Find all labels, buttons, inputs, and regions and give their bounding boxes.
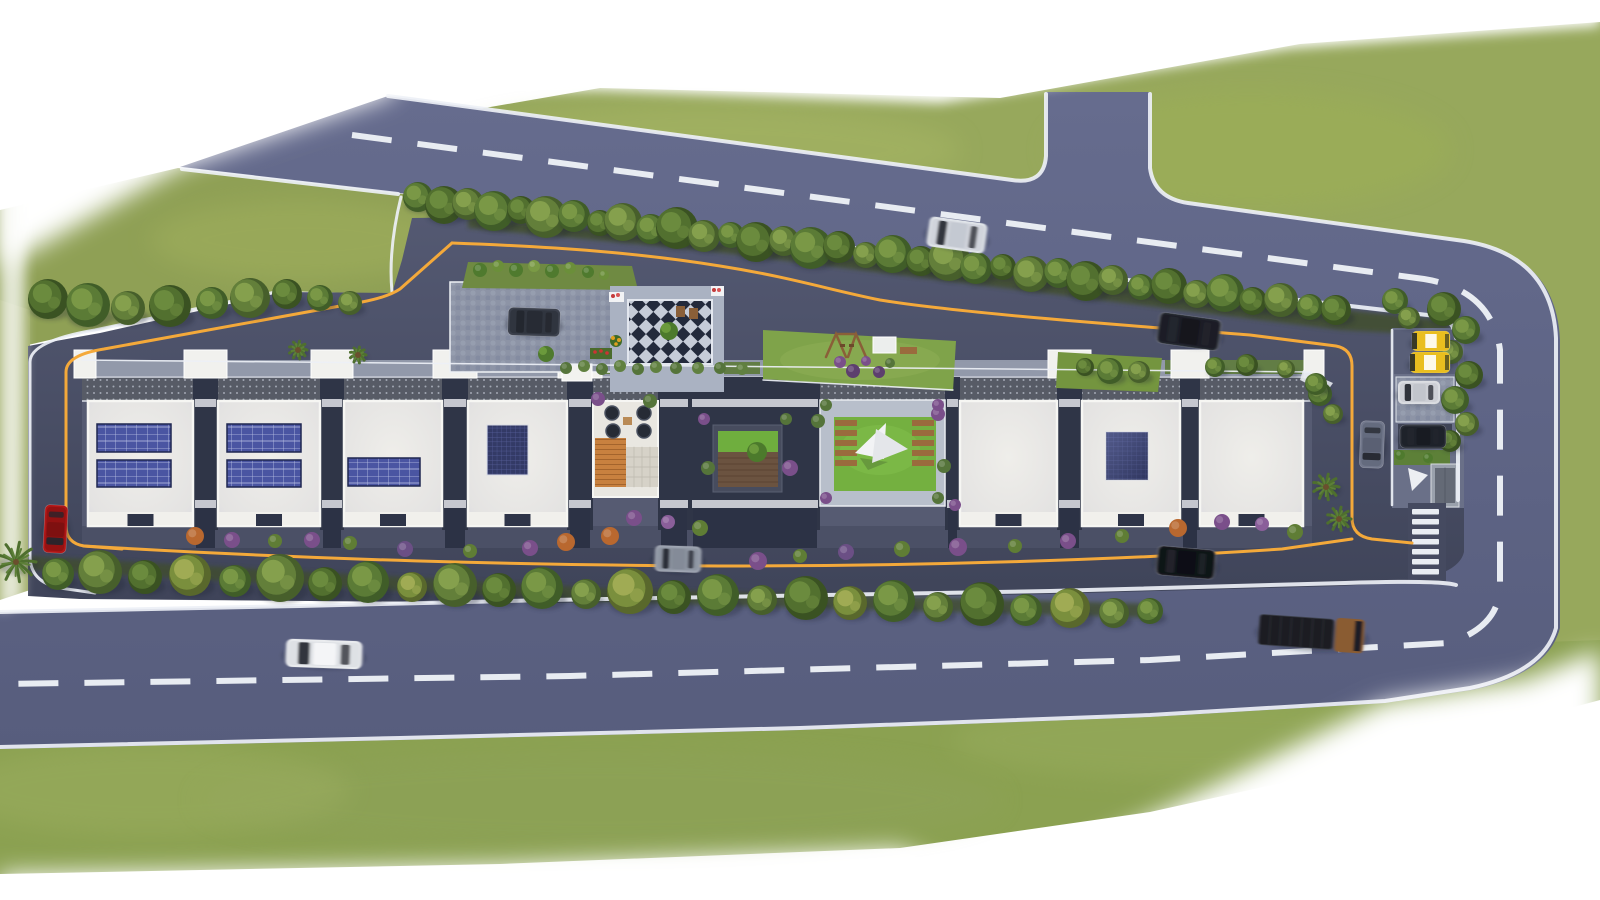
bush bbox=[304, 532, 320, 548]
bush bbox=[873, 366, 885, 378]
bush bbox=[343, 536, 357, 550]
bush bbox=[650, 361, 662, 373]
bush bbox=[692, 520, 708, 536]
bush bbox=[560, 362, 572, 374]
bush bbox=[937, 459, 951, 473]
bush bbox=[1060, 533, 1076, 549]
solar-array bbox=[227, 424, 301, 452]
bush bbox=[670, 362, 682, 374]
bush bbox=[1214, 514, 1230, 530]
bush bbox=[949, 538, 967, 556]
suv-dark-bottom-drive bbox=[1153, 545, 1219, 580]
solar-array bbox=[97, 460, 171, 487]
bush bbox=[397, 541, 413, 557]
bush bbox=[820, 399, 832, 411]
car-white-parking bbox=[1395, 381, 1443, 405]
solar-array bbox=[97, 424, 171, 452]
courtyard-green bbox=[713, 425, 782, 492]
van-white-bottom-road bbox=[283, 639, 366, 671]
wing-gap bbox=[442, 377, 468, 548]
bush bbox=[522, 540, 538, 556]
crosswalk bbox=[1408, 503, 1446, 581]
bush bbox=[692, 362, 704, 374]
bush bbox=[834, 356, 846, 368]
car-dark-parking bbox=[1397, 425, 1449, 449]
wing-gap bbox=[193, 377, 218, 548]
roof-skylight-lit bbox=[1106, 432, 1148, 480]
bush bbox=[1115, 529, 1129, 543]
bush bbox=[509, 263, 523, 277]
roof-skylight bbox=[487, 425, 528, 475]
bush bbox=[949, 499, 961, 511]
courtyard-tables bbox=[593, 401, 658, 497]
bush bbox=[861, 356, 871, 366]
bush bbox=[701, 461, 715, 475]
solar-array bbox=[348, 458, 420, 486]
wing-gap bbox=[567, 377, 593, 548]
bush bbox=[591, 392, 605, 406]
bush bbox=[846, 364, 860, 378]
bush bbox=[643, 394, 657, 408]
car-dark-plaza bbox=[505, 307, 564, 338]
bush bbox=[1395, 450, 1405, 460]
bush bbox=[626, 510, 642, 526]
courtyard-sails bbox=[820, 400, 945, 506]
bush bbox=[614, 360, 626, 372]
aerial-site-plan-render bbox=[0, 0, 1600, 900]
solar-array bbox=[227, 460, 301, 487]
north-stair-bump bbox=[1171, 350, 1209, 378]
wing-5 bbox=[960, 401, 1057, 526]
bush bbox=[564, 262, 576, 274]
wing-gap bbox=[1057, 377, 1082, 548]
bush bbox=[932, 399, 944, 411]
bush bbox=[714, 362, 726, 374]
bush bbox=[885, 358, 895, 368]
bush bbox=[749, 552, 767, 570]
bush bbox=[578, 360, 590, 372]
bush bbox=[596, 363, 608, 375]
bush bbox=[1008, 539, 1022, 553]
bush bbox=[736, 363, 748, 375]
bush bbox=[492, 260, 504, 272]
north-stair-bump bbox=[184, 350, 227, 378]
bush bbox=[782, 460, 798, 476]
car-silver-drive bbox=[652, 545, 705, 574]
bush bbox=[661, 515, 675, 529]
bush bbox=[698, 413, 710, 425]
bush bbox=[582, 266, 594, 278]
bus-yellow-1 bbox=[1409, 331, 1453, 352]
bush bbox=[224, 532, 240, 548]
bush bbox=[1255, 517, 1269, 531]
bush bbox=[473, 263, 487, 277]
wing-gap bbox=[320, 377, 344, 548]
bush bbox=[820, 492, 832, 504]
bush bbox=[780, 413, 792, 425]
bush bbox=[1287, 524, 1303, 540]
bush bbox=[186, 527, 204, 545]
bush bbox=[838, 544, 854, 560]
bus-yellow-2 bbox=[1407, 352, 1453, 374]
bush bbox=[268, 534, 282, 548]
wing-7 bbox=[1200, 401, 1303, 526]
site-plan-stage bbox=[0, 0, 1600, 900]
bush bbox=[1169, 519, 1187, 537]
car-grey-right-drive bbox=[1356, 420, 1388, 468]
bush bbox=[528, 260, 540, 272]
bush bbox=[601, 527, 619, 545]
bush bbox=[557, 533, 575, 551]
bush bbox=[545, 264, 559, 278]
fade-left-edge bbox=[0, 140, 26, 612]
north-stair-bump bbox=[311, 350, 353, 378]
bush bbox=[793, 549, 807, 563]
bush bbox=[599, 270, 609, 280]
bush bbox=[1423, 453, 1433, 463]
bush bbox=[463, 544, 477, 558]
bush bbox=[811, 414, 825, 428]
bush bbox=[632, 363, 644, 375]
bush bbox=[932, 492, 944, 504]
bush bbox=[894, 541, 910, 557]
